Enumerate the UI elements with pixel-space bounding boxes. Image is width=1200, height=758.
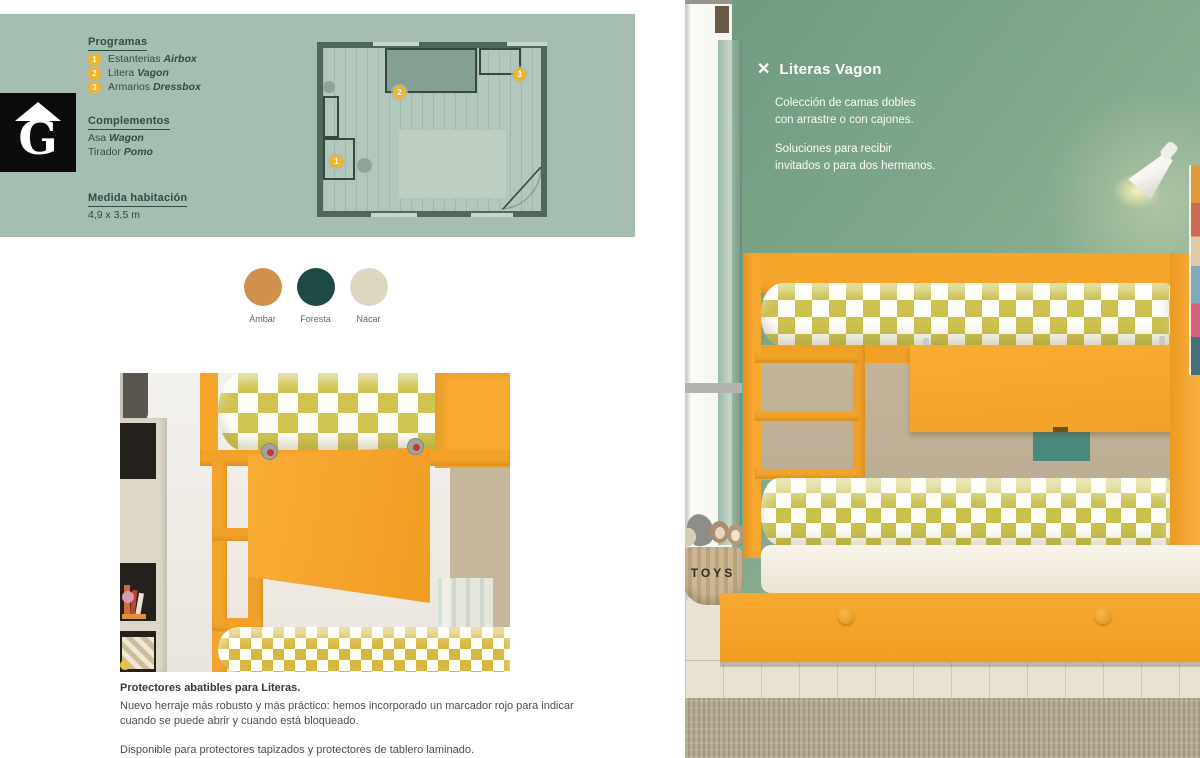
window-handle-bar — [685, 383, 742, 393]
shelf-unit — [120, 418, 167, 672]
floor-plan — [317, 42, 547, 217]
description-line: Colección de camas dobles — [775, 95, 935, 112]
toys-basket-label: TOYS — [685, 566, 743, 580]
shelf-slot-basket — [120, 631, 156, 672]
wall-lamp — [1123, 143, 1195, 221]
finish-swatches: Ámbar Foresta Nácar — [236, 268, 395, 324]
swatch-label: Ámbar — [249, 314, 276, 324]
plan-door — [497, 165, 545, 213]
swatch-ambar[interactable]: Ámbar — [236, 268, 289, 324]
ladder-rung — [755, 353, 859, 363]
swatch-label: Nácar — [356, 314, 380, 324]
window-reflection — [438, 578, 493, 630]
product-title-row: ✕ Literas Vagon — [757, 61, 882, 78]
toy-ball — [120, 660, 130, 670]
red-lock-marker — [261, 443, 278, 460]
trundle-drawer[interactable] — [720, 593, 1200, 662]
badge-2: 2 — [88, 67, 101, 80]
badge-1: 1 — [88, 53, 101, 66]
trundle-mattress — [761, 545, 1200, 593]
item-product: Wagon — [109, 132, 144, 144]
product-description: Colección de camas dobles con arrastre o… — [775, 95, 935, 186]
plan-window-gap — [373, 42, 419, 46]
plush-toy-face — [715, 527, 725, 539]
plan-badge-3: 3 — [513, 68, 526, 81]
x-brand-icon: ✕ — [757, 62, 770, 78]
description-paragraph: Soluciones para recibir invitados o para… — [775, 141, 935, 176]
list-item: 3 Armarios Dressbox — [88, 80, 201, 94]
plan-rug — [399, 130, 506, 198]
swatch-label: Foresta — [300, 314, 331, 324]
rug — [685, 698, 1200, 758]
top-bunk-mattress — [761, 283, 1170, 346]
plan-stool — [323, 81, 335, 93]
item-product: Vagon — [137, 67, 169, 79]
plan-stool — [357, 158, 372, 173]
item-label: Asa — [88, 132, 106, 144]
details-copy: Protectores abatibles para Literas. Nuev… — [120, 682, 602, 758]
wall-art — [1033, 428, 1090, 461]
description-line: con arrastre o con cajones. — [775, 112, 935, 129]
red-lock-marker — [407, 438, 424, 455]
panel-lock-notch — [1053, 427, 1068, 432]
swatch-color — [244, 268, 282, 306]
item-label: Tirador — [88, 146, 121, 158]
plan-window-gap — [507, 42, 547, 46]
item-label: Armarios — [108, 81, 150, 93]
bottom-bunk-mattress — [761, 478, 1170, 545]
plan-window-gap — [371, 213, 417, 217]
description-paragraph: Colección de camas dobles con arrastre o… — [775, 95, 935, 130]
shelf-slot-books — [120, 563, 156, 621]
item-product: Dressbox — [153, 81, 201, 93]
product-title: Literas Vagon — [779, 61, 881, 78]
protector-detail-photo — [120, 373, 510, 672]
programas-title: Programas — [88, 36, 147, 51]
swatch-color — [350, 268, 388, 306]
item-product: Pomo — [124, 146, 153, 158]
item-label: Estanterias — [108, 53, 161, 65]
list-item: 2 Litera Vagon — [88, 66, 201, 80]
catalog-page: Programas 1 Estanterias Airbox 2 Litera … — [0, 0, 1200, 758]
room-size-value: 4,9 x 3,5 m — [88, 209, 140, 221]
complementos-list: Asa Wagon Tirador Pomo — [88, 131, 153, 159]
bunk-post-left — [743, 253, 761, 558]
plan-badge-2: 2 — [393, 86, 406, 99]
protector-panel — [910, 345, 1188, 432]
brand-logo[interactable]: G — [0, 93, 76, 172]
plan-badge-1: 1 — [330, 155, 343, 168]
item-label: Litera — [108, 67, 134, 79]
fold-down-protector-panel — [248, 447, 430, 603]
bed-headboard-edge — [200, 373, 218, 461]
programas-list: 1 Estanterias Airbox 2 Litera Vagon 3 Ar… — [88, 52, 201, 94]
book — [122, 614, 146, 619]
plan-shelf — [323, 96, 339, 138]
list-item: Tirador Pomo — [88, 145, 153, 159]
description-line: Soluciones para recibir — [775, 141, 935, 158]
details-heading: Protectores abatibles para Literas. — [120, 682, 602, 694]
plush-toy-face — [731, 530, 740, 541]
badge-3: 3 — [88, 81, 101, 94]
trundle-shadow — [720, 662, 1200, 667]
details-paragraph-1: Nuevo herraje más robusto y más práctico… — [120, 699, 602, 730]
medida-title: Medida habitación — [88, 192, 187, 207]
toy-ball — [122, 591, 134, 603]
drawer-knob[interactable] — [1095, 608, 1111, 624]
ladder-rung — [755, 411, 859, 421]
window-frame — [685, 0, 732, 4]
bottom-bunk-mattress — [218, 627, 510, 672]
hanging-bag — [123, 373, 148, 423]
drawer-knob[interactable] — [838, 608, 854, 624]
swatch-color — [297, 268, 335, 306]
description-line: invitados o para dos hermanos. — [775, 158, 935, 175]
complementos-title: Complementos — [88, 115, 170, 130]
hinge-clip — [1159, 336, 1165, 345]
logo-letter: G — [18, 113, 57, 164]
list-item: 1 Estanterias Airbox — [88, 52, 201, 66]
shelf-slot — [120, 423, 156, 479]
poster-edge — [1189, 165, 1200, 375]
item-product: Airbox — [163, 53, 196, 65]
swatch-nacar[interactable]: Nácar — [342, 268, 395, 324]
plan-window-gap — [471, 213, 513, 217]
details-paragraph-2: Disponible para protectores tapizados y … — [120, 743, 602, 758]
curtain-rod-bracket — [715, 6, 729, 33]
glass-partition — [718, 40, 742, 545]
swatch-foresta[interactable]: Foresta — [289, 268, 342, 324]
list-item: Asa Wagon — [88, 131, 153, 145]
room-photo: TOYS ✕ — [685, 0, 1200, 758]
